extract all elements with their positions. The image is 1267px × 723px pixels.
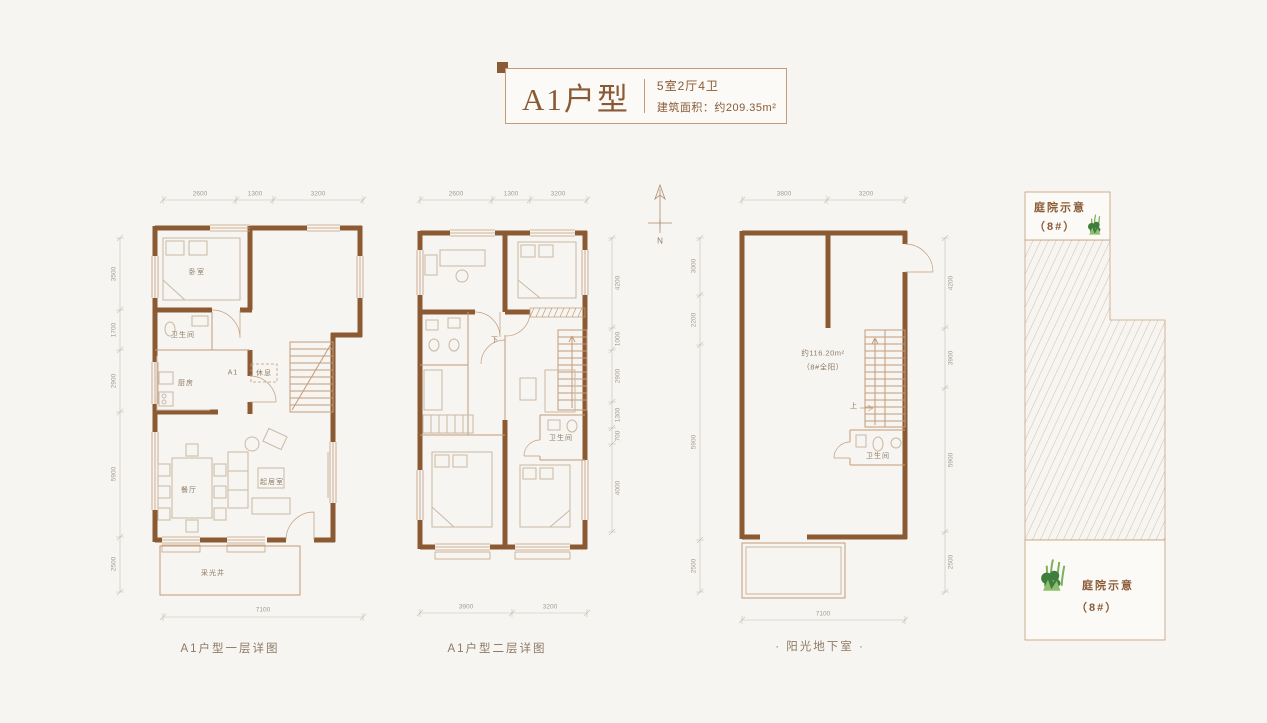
dim-label: 3500 — [111, 267, 118, 281]
plan-caption-floor2: A1户型二层详图 — [447, 640, 546, 656]
dim-label: 2900 — [615, 369, 622, 383]
dim-label: 4200 — [615, 276, 622, 290]
dim-label: 3000 — [691, 259, 698, 273]
dim-label: 3200 — [551, 191, 565, 198]
plan-caption-basement: · 阳光地下室 · — [775, 638, 865, 654]
courtyard-label-top-sub: （8#） — [1034, 218, 1076, 234]
basement-plan: 3800 3200 3000 2200 5900 2500 4200 3900 … — [660, 180, 980, 670]
dim-label: 2600 — [449, 191, 463, 198]
plan-caption-floor1: A1户型一层详图 — [180, 640, 279, 656]
dim-label: 2500 — [111, 557, 118, 571]
dim-label: 2500 — [691, 559, 698, 573]
courtyard-label-top: 庭院示意 — [1034, 199, 1086, 215]
dim-label: 1300 — [504, 191, 518, 198]
dim-label: 2200 — [691, 313, 698, 327]
dim-label: 2600 — [193, 191, 207, 198]
dim-label: 3200 — [543, 604, 557, 611]
dim-label: 1000 — [615, 332, 622, 346]
dim-label: 5900 — [948, 453, 955, 467]
dim-label: 4000 — [615, 481, 622, 495]
room-label-bathroom: 卫生间 — [549, 433, 573, 443]
unit-area-spec: 建筑面积：约209.35m² — [657, 99, 776, 115]
courtyard-label-bottom-sub: （8#） — [1076, 599, 1118, 615]
dim-label: 2500 — [948, 555, 955, 569]
dim-label: 3900 — [459, 604, 473, 611]
dim-label: 2900 — [111, 374, 118, 388]
unit-name: A1户型 — [506, 74, 644, 119]
dim-label: 700 — [615, 431, 622, 442]
room-label-dining: 餐厅 — [181, 485, 197, 495]
room-label-bathroom: 卫生间 — [171, 330, 195, 340]
dim-label: 3200 — [311, 191, 325, 198]
dim-label: 1300 — [615, 408, 622, 422]
dim-label: 3200 — [859, 191, 873, 198]
room-label-rest: 休息 — [256, 368, 272, 378]
dim-label: 1300 — [248, 191, 262, 198]
stair-label-up: 上 — [850, 401, 858, 411]
title-block: A1户型 5室2厅4卫 建筑面积：约209.35m² — [497, 62, 797, 132]
room-label-bedroom: 卧室 — [189, 267, 205, 277]
dim-label: 7100 — [816, 611, 830, 618]
unit-rooms-spec: 5室2厅4卫 — [657, 77, 776, 94]
dim-label: 3800 — [777, 191, 791, 198]
room-label-unit: A1 — [228, 370, 239, 377]
dim-label: 1700 — [111, 323, 118, 337]
dim-label: 5900 — [111, 467, 118, 481]
dim-label: 3900 — [948, 351, 955, 365]
room-label-bathroom: 卫生间 — [866, 451, 890, 461]
second-floor-drawing — [390, 180, 640, 670]
title-frame: A1户型 5室2厅4卫 建筑面积：约209.35m² — [505, 68, 787, 124]
room-label-lightwell: 采光井 — [201, 568, 225, 578]
basement-area-note: 约116.20m² — [801, 348, 844, 359]
first-floor-drawing — [100, 180, 390, 670]
second-floor-plan: 2600 1300 3200 4200 1000 2900 1300 700 4… — [390, 180, 640, 670]
courtyard-label-bottom: 庭院示意 — [1082, 577, 1134, 593]
unit-specs: 5室2厅4卫 建筑面积：约209.35m² — [645, 77, 776, 115]
dim-label: 7100 — [256, 607, 270, 614]
basement-area-note-sub: （8#全阳） — [802, 362, 843, 373]
first-floor-plan: 2600 1300 3200 3500 1700 2900 5900 2500 … — [100, 180, 390, 670]
stair-label-down: 下 — [491, 335, 499, 345]
basement-drawing — [660, 180, 980, 670]
dim-label: 4200 — [948, 276, 955, 290]
room-label-kitchen: 厨房 — [178, 378, 194, 388]
dim-label: 5900 — [691, 435, 698, 449]
courtyard-diagram: 庭院示意 （8#） 庭院示意 （8#） — [1020, 185, 1180, 655]
room-label-living: 起居室 — [260, 477, 284, 487]
floorplan-sheet: A1户型 5室2厅4卫 建筑面积：约209.35m² — [0, 0, 1267, 723]
